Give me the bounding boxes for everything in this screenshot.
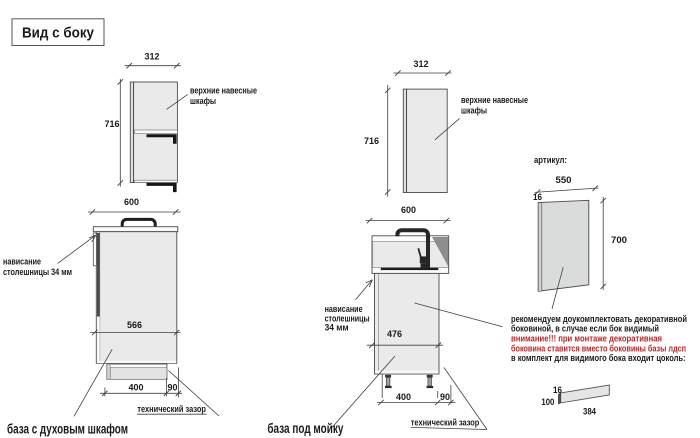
svg-text:34 мм: 34 мм <box>325 323 349 333</box>
svg-text:400: 400 <box>129 383 144 394</box>
svg-text:90: 90 <box>168 383 178 394</box>
svg-text:716: 716 <box>364 136 379 147</box>
svg-text:566: 566 <box>127 320 142 331</box>
svg-text:база под мойку: база под мойку <box>267 421 343 436</box>
svg-text:шкафы: шкафы <box>190 96 216 106</box>
svg-text:90: 90 <box>440 392 450 403</box>
svg-text:384: 384 <box>583 406 597 417</box>
svg-text:312: 312 <box>145 52 160 63</box>
svg-text:база с духовым шкафом: база с духовым шкафом <box>7 422 128 437</box>
svg-text:артикул:: артикул: <box>534 155 567 165</box>
svg-text:нависание: нависание <box>325 304 363 314</box>
svg-text:400: 400 <box>396 392 411 403</box>
svg-text:600: 600 <box>124 197 139 208</box>
svg-text:700: 700 <box>611 235 627 246</box>
svg-text:100: 100 <box>541 397 554 408</box>
svg-text:верхние навесные: верхние навесные <box>461 95 528 105</box>
svg-text:16: 16 <box>533 192 542 203</box>
svg-text:Вид с боку: Вид с боку <box>22 26 94 42</box>
svg-text:550: 550 <box>556 175 572 186</box>
svg-text:боковиной, в случае если бок в: боковиной, в случае если бок видимый <box>511 324 659 334</box>
svg-text:шкафы: шкафы <box>461 106 487 116</box>
svg-text:312: 312 <box>414 59 429 70</box>
svg-text:боковина ставится вместо боков: боковина ставится вместо боковины базы л… <box>511 343 686 353</box>
svg-text:476: 476 <box>387 329 402 340</box>
svg-text:столешницы 34 мм: столешницы 34 мм <box>3 267 72 277</box>
svg-text:600: 600 <box>401 205 416 216</box>
svg-text:рекомендуем доукомплектовать д: рекомендуем доукомплектовать декоративно… <box>511 314 687 324</box>
svg-text:технический зазор: технический зазор <box>411 418 480 428</box>
svg-text:716: 716 <box>105 119 120 130</box>
svg-text:верхние навесные: верхние навесные <box>190 86 257 96</box>
svg-text:технический зазор: технический зазор <box>137 404 206 414</box>
svg-text:в комплект для видимого бока в: в комплект для видимого бока входит цоко… <box>511 353 686 363</box>
svg-text:нависание: нависание <box>3 257 41 267</box>
svg-text:внимание!!! при монтаже декора: внимание!!! при монтаже декоративная <box>511 334 662 344</box>
